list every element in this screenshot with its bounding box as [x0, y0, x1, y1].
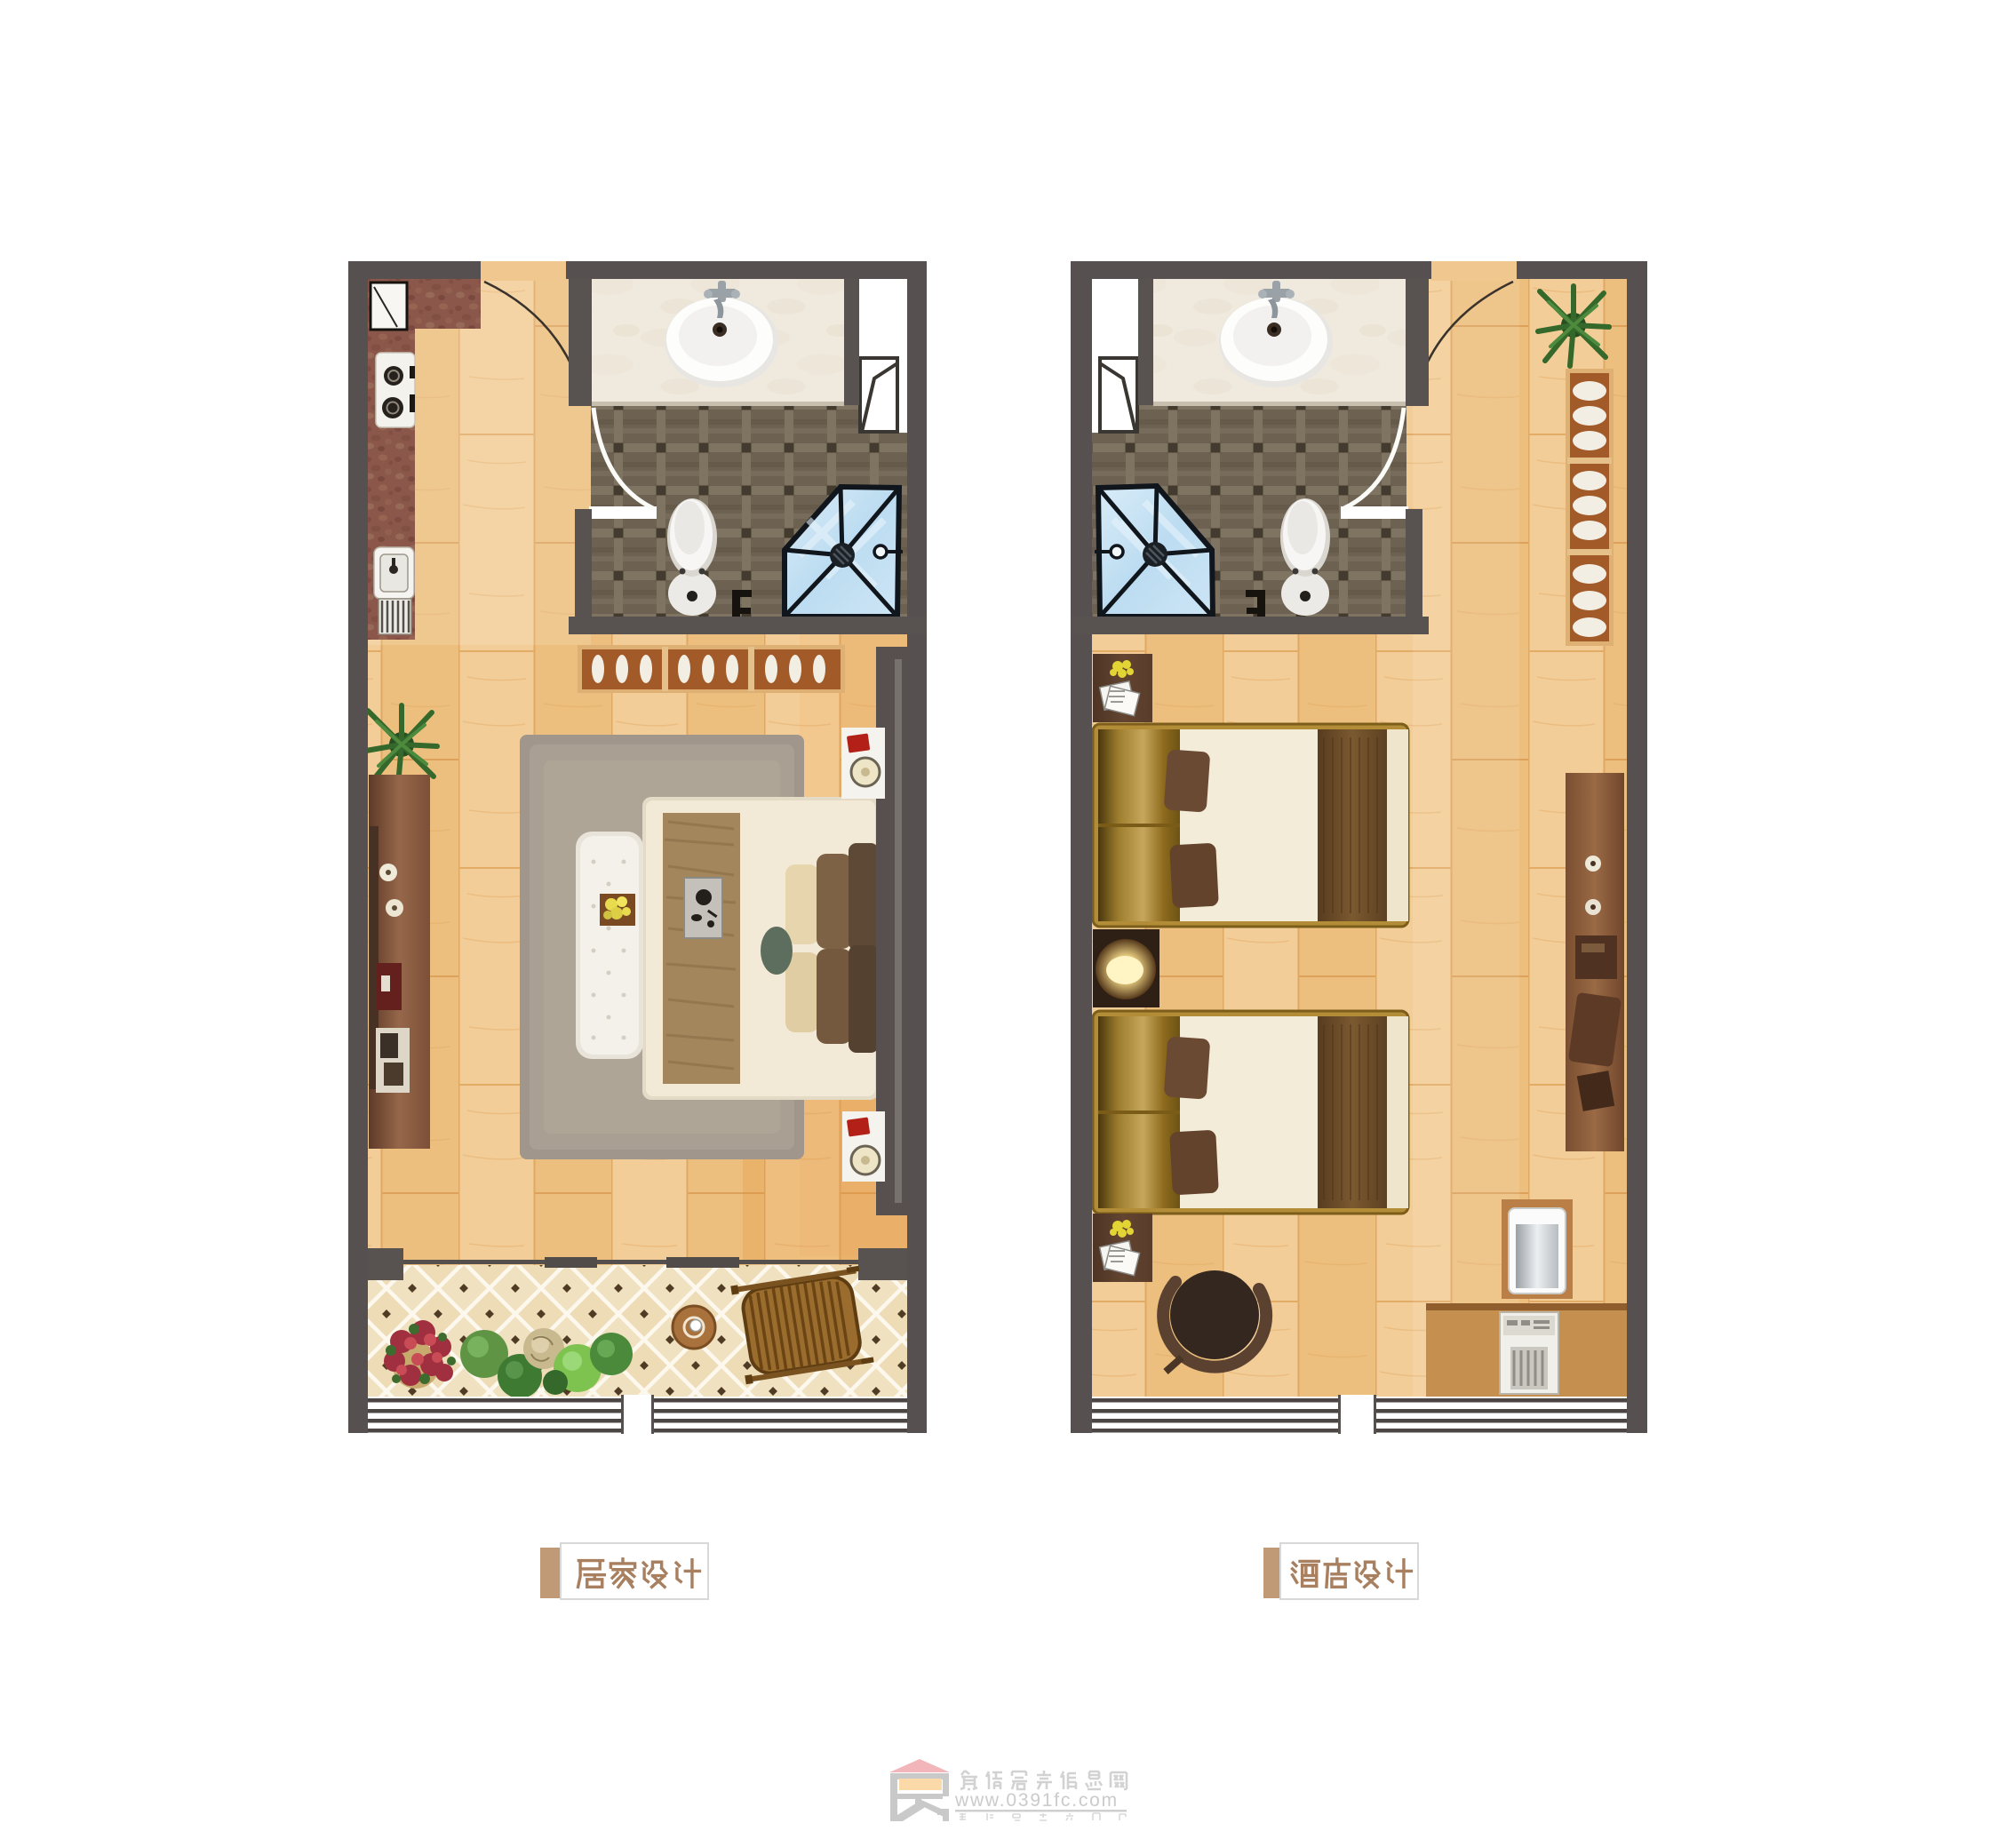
svg-text:www.0391fc.com: www.0391fc.com	[954, 1790, 1119, 1811]
